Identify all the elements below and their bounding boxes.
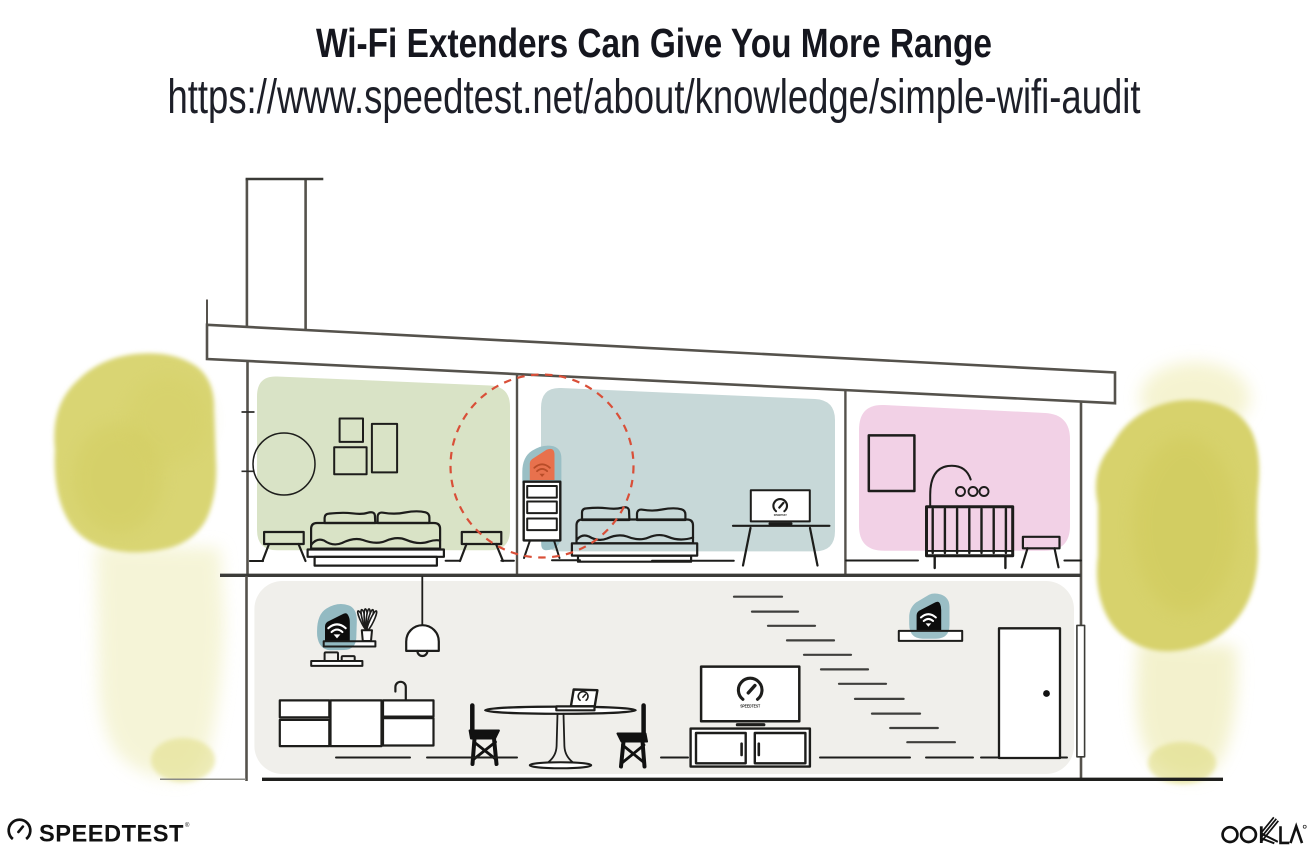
- svg-text:SPEEDTEST: SPEEDTEST: [39, 821, 184, 848]
- svg-text:https://www.speedtest.net/abou: https://www.speedtest.net/about/knowledg…: [168, 71, 1141, 124]
- svg-text:SPEEDTEST: SPEEDTEST: [774, 513, 787, 517]
- svg-text:SPEEDTEST: SPEEDTEST: [740, 703, 760, 709]
- svg-text:®: ®: [185, 822, 190, 829]
- svg-text:Wi-Fi Extenders Can Give You M: Wi-Fi Extenders Can Give You More Range: [316, 20, 992, 66]
